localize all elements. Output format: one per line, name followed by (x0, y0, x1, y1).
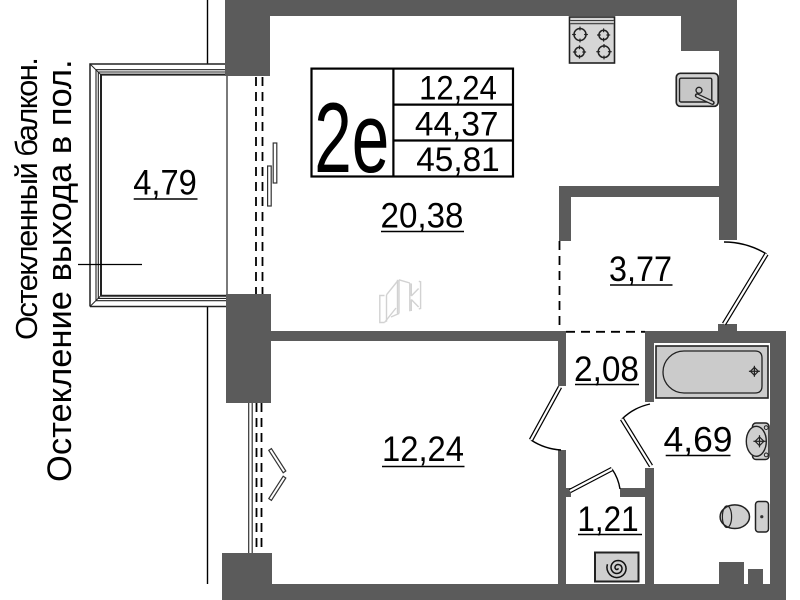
svg-text:2,08: 2,08 (574, 350, 639, 389)
svg-text:12,24: 12,24 (382, 430, 464, 469)
svg-text:44,37: 44,37 (415, 105, 499, 143)
svg-text:2е: 2е (314, 82, 389, 193)
svg-text:4,69: 4,69 (664, 421, 733, 460)
svg-text:1,21: 1,21 (577, 500, 638, 539)
svg-text:3,77: 3,77 (609, 250, 672, 289)
svg-text:20,38: 20,38 (381, 196, 464, 235)
svg-text:45,81: 45,81 (416, 141, 500, 179)
svg-text:4,79: 4,79 (133, 164, 197, 203)
svg-text:12,24: 12,24 (419, 69, 497, 107)
